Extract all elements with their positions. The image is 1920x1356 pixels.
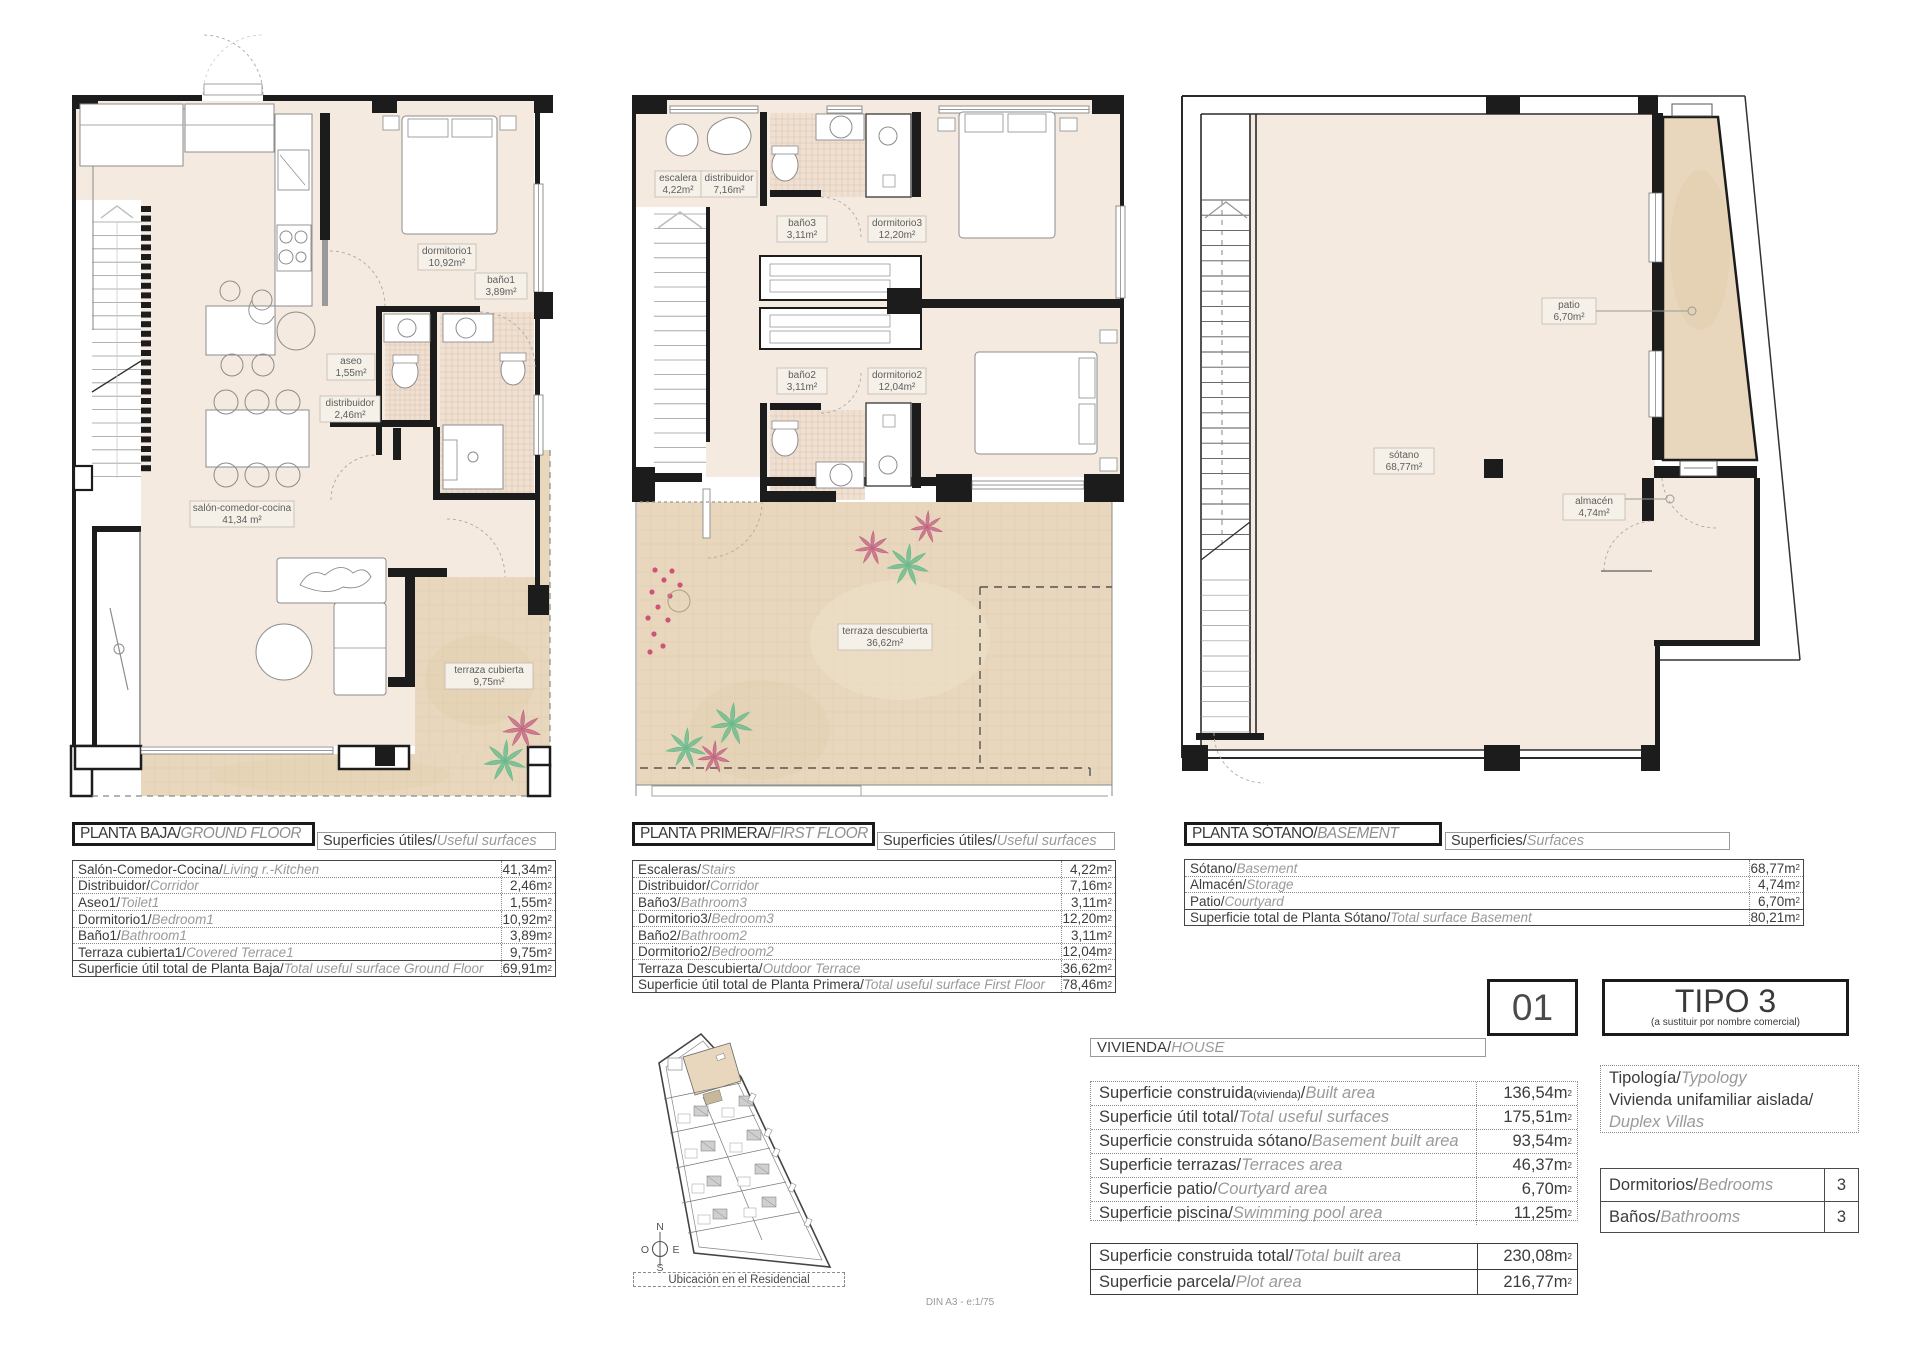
svg-text:3,89m²: 3,89m²	[485, 287, 517, 298]
svg-text:baño2: baño2	[788, 370, 816, 381]
svg-text:almacén: almacén	[1575, 496, 1613, 507]
svg-text:salón-comedor-cocina: salón-comedor-cocina	[193, 503, 292, 514]
svg-text:dormitorio2: dormitorio2	[872, 370, 922, 381]
svg-text:3,11m²: 3,11m²	[787, 230, 818, 241]
svg-text:1,55m²: 1,55m²	[335, 368, 367, 379]
svg-text:patio: patio	[1558, 300, 1580, 311]
svg-text:3,11m²: 3,11m²	[787, 382, 818, 393]
svg-text:12,04m²: 12,04m²	[879, 382, 916, 393]
svg-text:4,74m²: 4,74m²	[1578, 508, 1610, 519]
svg-text:6,70m²: 6,70m²	[1553, 312, 1585, 323]
svg-text:E: E	[672, 1244, 679, 1256]
svg-text:escalera: escalera	[659, 173, 697, 184]
svg-text:terraza descubierta: terraza descubierta	[842, 626, 928, 637]
svg-text:baño1: baño1	[487, 275, 515, 286]
svg-text:36,62m²: 36,62m²	[867, 638, 904, 649]
svg-text:41,34 m²: 41,34 m²	[222, 515, 262, 526]
svg-text:dormitorio1: dormitorio1	[422, 246, 472, 257]
svg-text:distribuidor: distribuidor	[326, 398, 376, 409]
svg-text:sótano: sótano	[1389, 450, 1419, 461]
svg-text:aseo: aseo	[340, 356, 362, 367]
svg-text:terraza cubierta: terraza cubierta	[454, 665, 524, 676]
svg-text:4,22m²: 4,22m²	[662, 185, 694, 196]
svg-text:N: N	[656, 1221, 664, 1233]
svg-text:O: O	[641, 1244, 649, 1256]
svg-text:12,20m²: 12,20m²	[879, 230, 916, 241]
svg-text:9,75m²: 9,75m²	[473, 677, 505, 688]
svg-text:distribuidor: distribuidor	[705, 173, 755, 184]
svg-text:7,16m²: 7,16m²	[713, 185, 745, 196]
svg-text:baño3: baño3	[788, 218, 816, 229]
svg-text:10,92m²: 10,92m²	[429, 258, 466, 269]
svg-text:68,77m²: 68,77m²	[1386, 462, 1423, 473]
svg-text:dormitorio3: dormitorio3	[872, 218, 922, 229]
svg-text:2,46m²: 2,46m²	[334, 410, 366, 421]
